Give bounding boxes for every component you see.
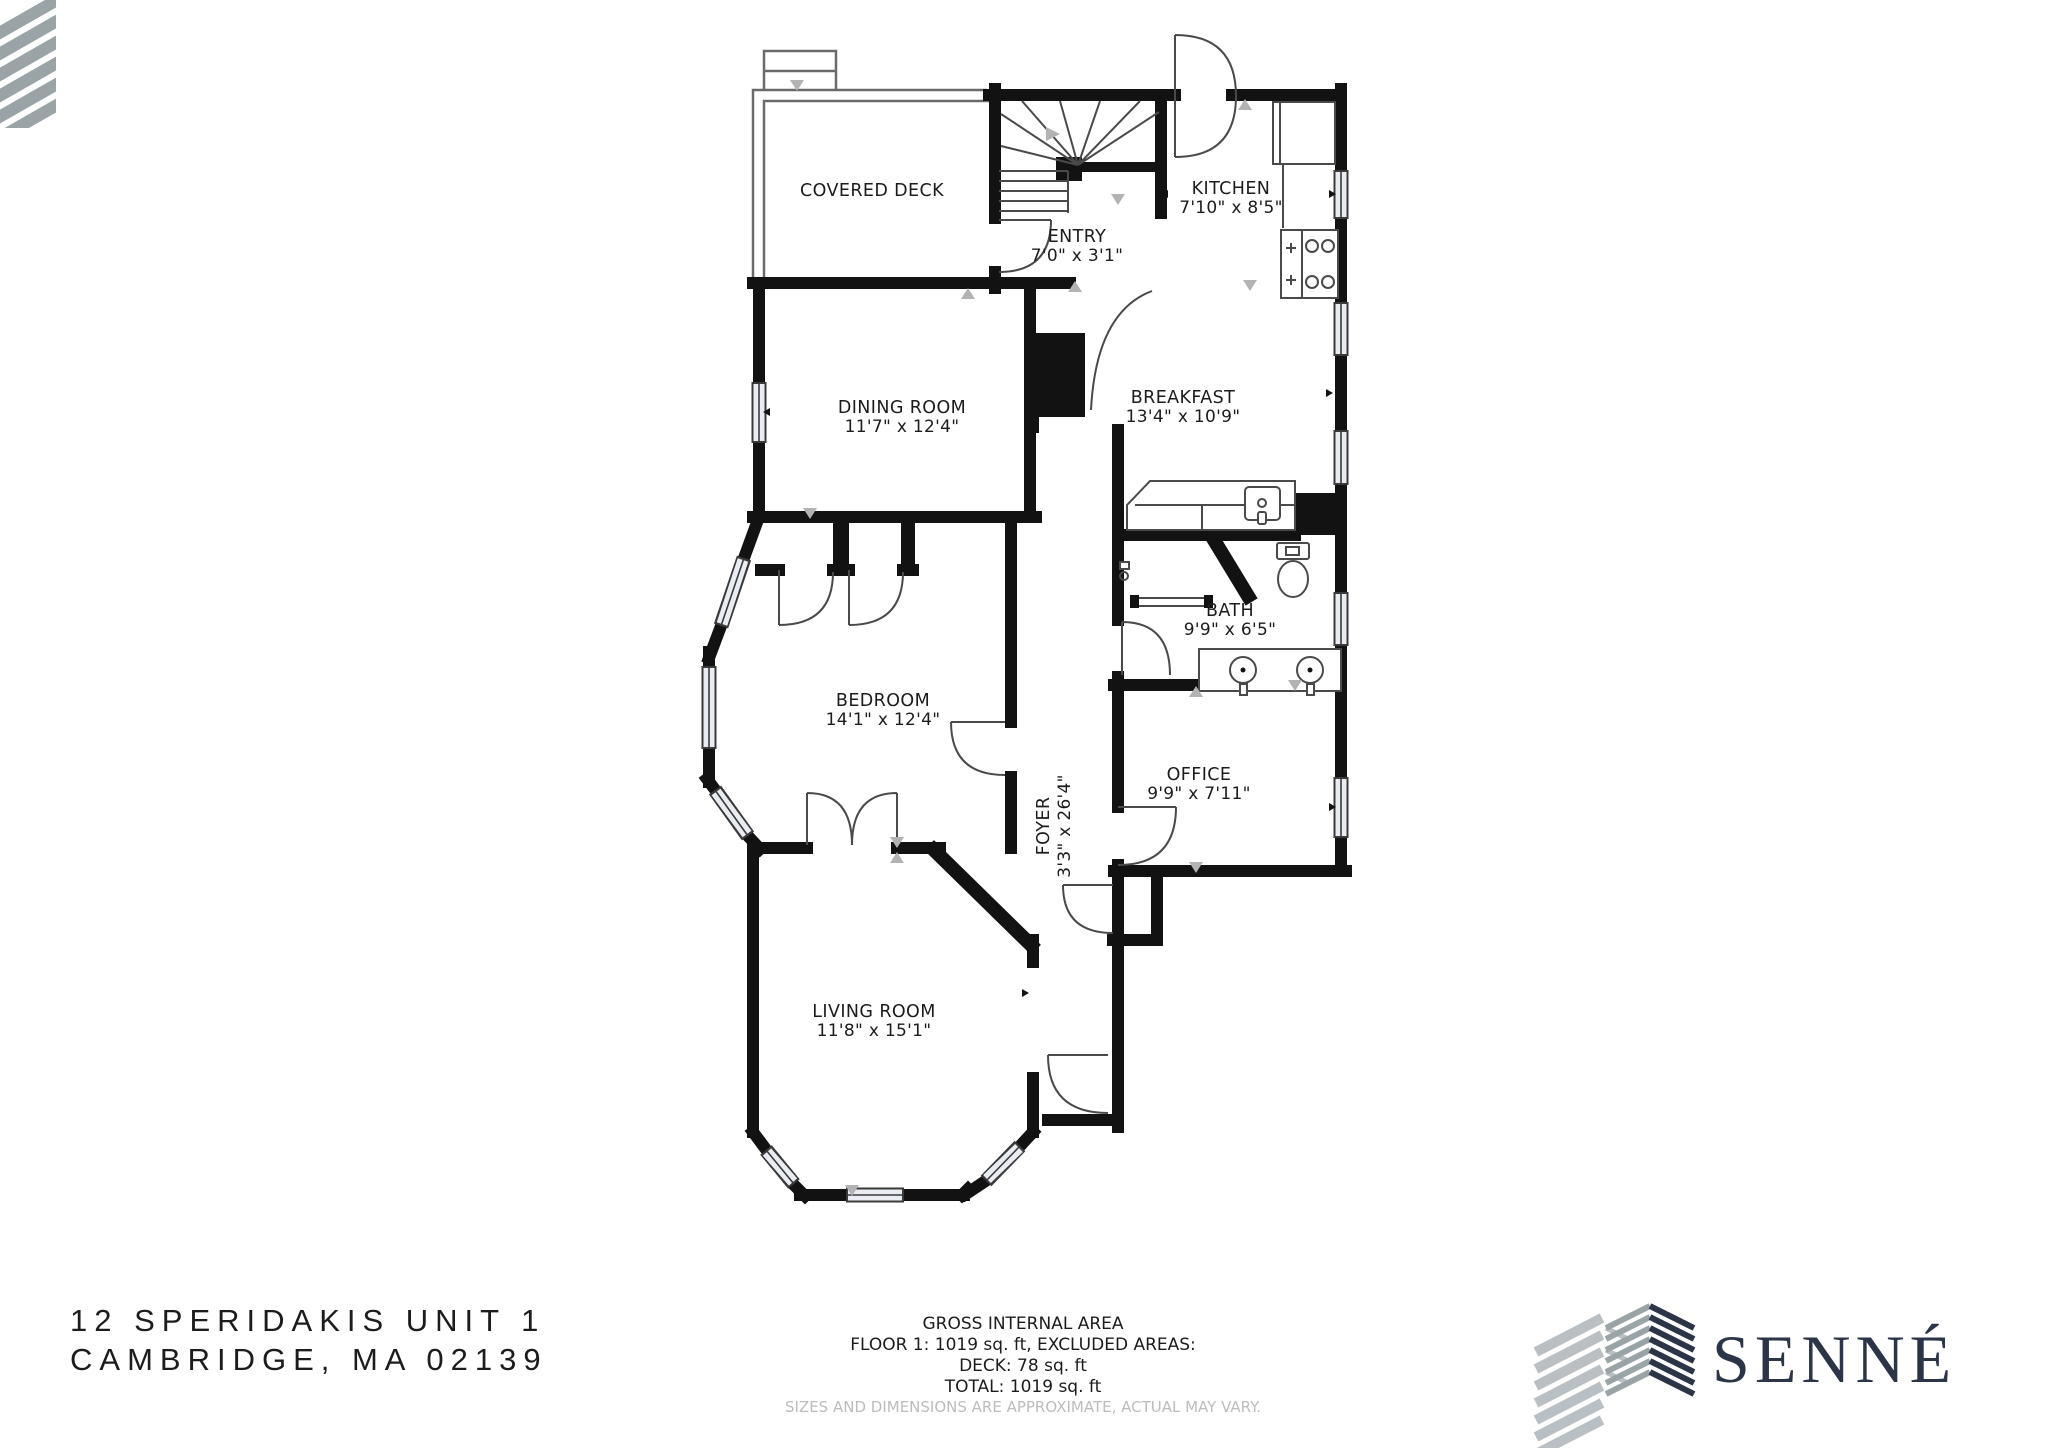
room-dims-living: 11'8" x 15'1" <box>817 1021 932 1041</box>
room-label-breakfast: BREAKFAST <box>1131 388 1236 408</box>
address-line-2: CAMBRIDGE, MA 02139 <box>70 1342 548 1377</box>
walls <box>707 89 1347 1196</box>
window-living-bay-right <box>986 1146 1020 1181</box>
room-dims-kitchen: 7'10" x 8'5" <box>1179 198 1283 218</box>
room-label-bath: BATH <box>1206 601 1254 621</box>
door-swing-bath <box>1122 622 1170 675</box>
closet-end-wall <box>901 517 915 572</box>
room-dims-bedroom: 14'1" x 12'4" <box>826 710 941 730</box>
room-dims-office: 9'9" x 7'11" <box>1147 784 1251 804</box>
room-dims-entry: 7'0" x 3'1" <box>1031 246 1123 266</box>
corner-brand-stripes-icon <box>0 0 64 141</box>
area-disclaimer: SIZES AND DIMENSIONS ARE APPROXIMATE, AC… <box>785 1398 1261 1416</box>
door-swing-bedroom <box>951 722 1005 775</box>
brand-logo: SENNÉ <box>1536 1306 1956 1448</box>
bath-shower <box>1120 562 1213 608</box>
door-swing-closet-left <box>779 570 833 625</box>
door-swing-foyer-rear <box>1063 885 1113 933</box>
room-label-covered-deck: COVERED DECK <box>800 181 944 201</box>
closet-divider <box>833 517 849 572</box>
area-total: TOTAL: 1019 sq. ft <box>944 1377 1102 1397</box>
brand-name: SENNÉ <box>1712 1321 1956 1397</box>
area-floor1: FLOOR 1: 1019 sq. ft, EXCLUDED AREAS: <box>850 1335 1196 1355</box>
chimney-step <box>1025 417 1039 433</box>
room-label-dining: DINING ROOM <box>838 398 966 418</box>
area-deck: DECK: 78 sq. ft <box>959 1356 1087 1376</box>
door-swing-closet-right <box>849 570 903 625</box>
room-label-living: LIVING ROOM <box>812 1002 935 1022</box>
window-bedroom-bay-upper <box>721 558 744 626</box>
room-dims-breakfast: 13'4" x 10'9" <box>1126 407 1241 427</box>
room-label-foyer: FOYER <box>1034 797 1054 856</box>
address-line-1: 12 SPERIDAKIS UNIT 1 <box>70 1303 545 1338</box>
floorplan-page: COVERED DECK ENTRY 7'0" x 3'1" KITCHEN 7… <box>0 0 2048 1448</box>
address-block: 12 SPERIDAKIS UNIT 1 CAMBRIDGE, MA 02139 <box>70 1303 548 1377</box>
door-swing-office <box>1118 807 1176 865</box>
area-summary: GROSS INTERNAL AREA FLOOR 1: 1019 sq. ft… <box>785 1314 1261 1416</box>
brand-logo-mark-icon <box>1536 1306 1694 1448</box>
kitchen-range <box>1281 230 1338 298</box>
room-dims-dining: 11'7" x 12'4" <box>845 417 960 437</box>
stair-direction-arrow-icon <box>1046 127 1060 141</box>
breakfast-counter <box>1127 481 1295 530</box>
covered-deck-outline <box>753 51 989 281</box>
door-swing-rear-exit <box>1048 1055 1108 1113</box>
door-swing-french-doors <box>807 793 897 845</box>
shower-valve-icon <box>1120 562 1129 569</box>
area-title: GROSS INTERNAL AREA <box>922 1314 1123 1334</box>
floor-plan: COVERED DECK ENTRY 7'0" x 3'1" KITCHEN 7… <box>707 35 1347 1196</box>
breakfast-corner-block <box>1291 493 1347 535</box>
footer: 12 SPERIDAKIS UNIT 1 CAMBRIDGE, MA 02139… <box>70 1303 1956 1448</box>
room-label-bedroom: BEDROOM <box>836 691 930 711</box>
window-bedroom-bay-lower <box>715 790 748 836</box>
chimney-block <box>1025 333 1085 417</box>
room-dims-foyer: 3'3" x 26'4" <box>1055 774 1075 878</box>
room-labels: COVERED DECK ENTRY 7'0" x 3'1" KITCHEN 7… <box>800 179 1283 1041</box>
room-label-kitchen: KITCHEN <box>1192 179 1271 199</box>
bath-toilet <box>1277 543 1309 597</box>
window-living-bay-left <box>766 1150 794 1184</box>
room-label-office: OFFICE <box>1167 765 1232 785</box>
room-label-entry: ENTRY <box>1048 227 1107 247</box>
room-dims-bath: 9'9" x 6'5" <box>1184 620 1276 640</box>
bath-vanity <box>1199 649 1341 695</box>
